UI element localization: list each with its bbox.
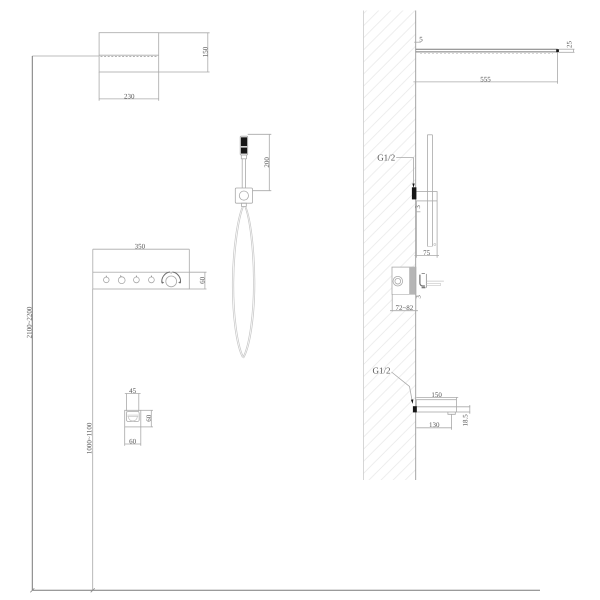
svg-text:230: 230: [124, 92, 135, 100]
svg-text:3: 3: [414, 205, 422, 209]
svg-text:60: 60: [129, 438, 137, 446]
svg-text:72~82: 72~82: [396, 304, 414, 312]
svg-text:75: 75: [423, 249, 431, 257]
svg-text:555: 555: [480, 75, 491, 83]
svg-text:60: 60: [145, 414, 153, 422]
svg-text:150: 150: [431, 391, 442, 399]
svg-text:2100~2200: 2100~2200: [26, 306, 34, 338]
svg-text:1000~1100: 1000~1100: [86, 422, 94, 454]
svg-text:200: 200: [263, 157, 271, 168]
svg-text:45: 45: [129, 387, 137, 395]
svg-text:18.5: 18.5: [462, 414, 470, 427]
svg-text:G1/2: G1/2: [377, 152, 395, 162]
svg-text:150: 150: [202, 46, 210, 57]
svg-text:60: 60: [199, 276, 207, 284]
svg-text:350: 350: [135, 243, 146, 251]
svg-text:25: 25: [565, 41, 573, 49]
svg-text:G1/2: G1/2: [373, 366, 391, 376]
svg-text:130: 130: [429, 421, 440, 429]
